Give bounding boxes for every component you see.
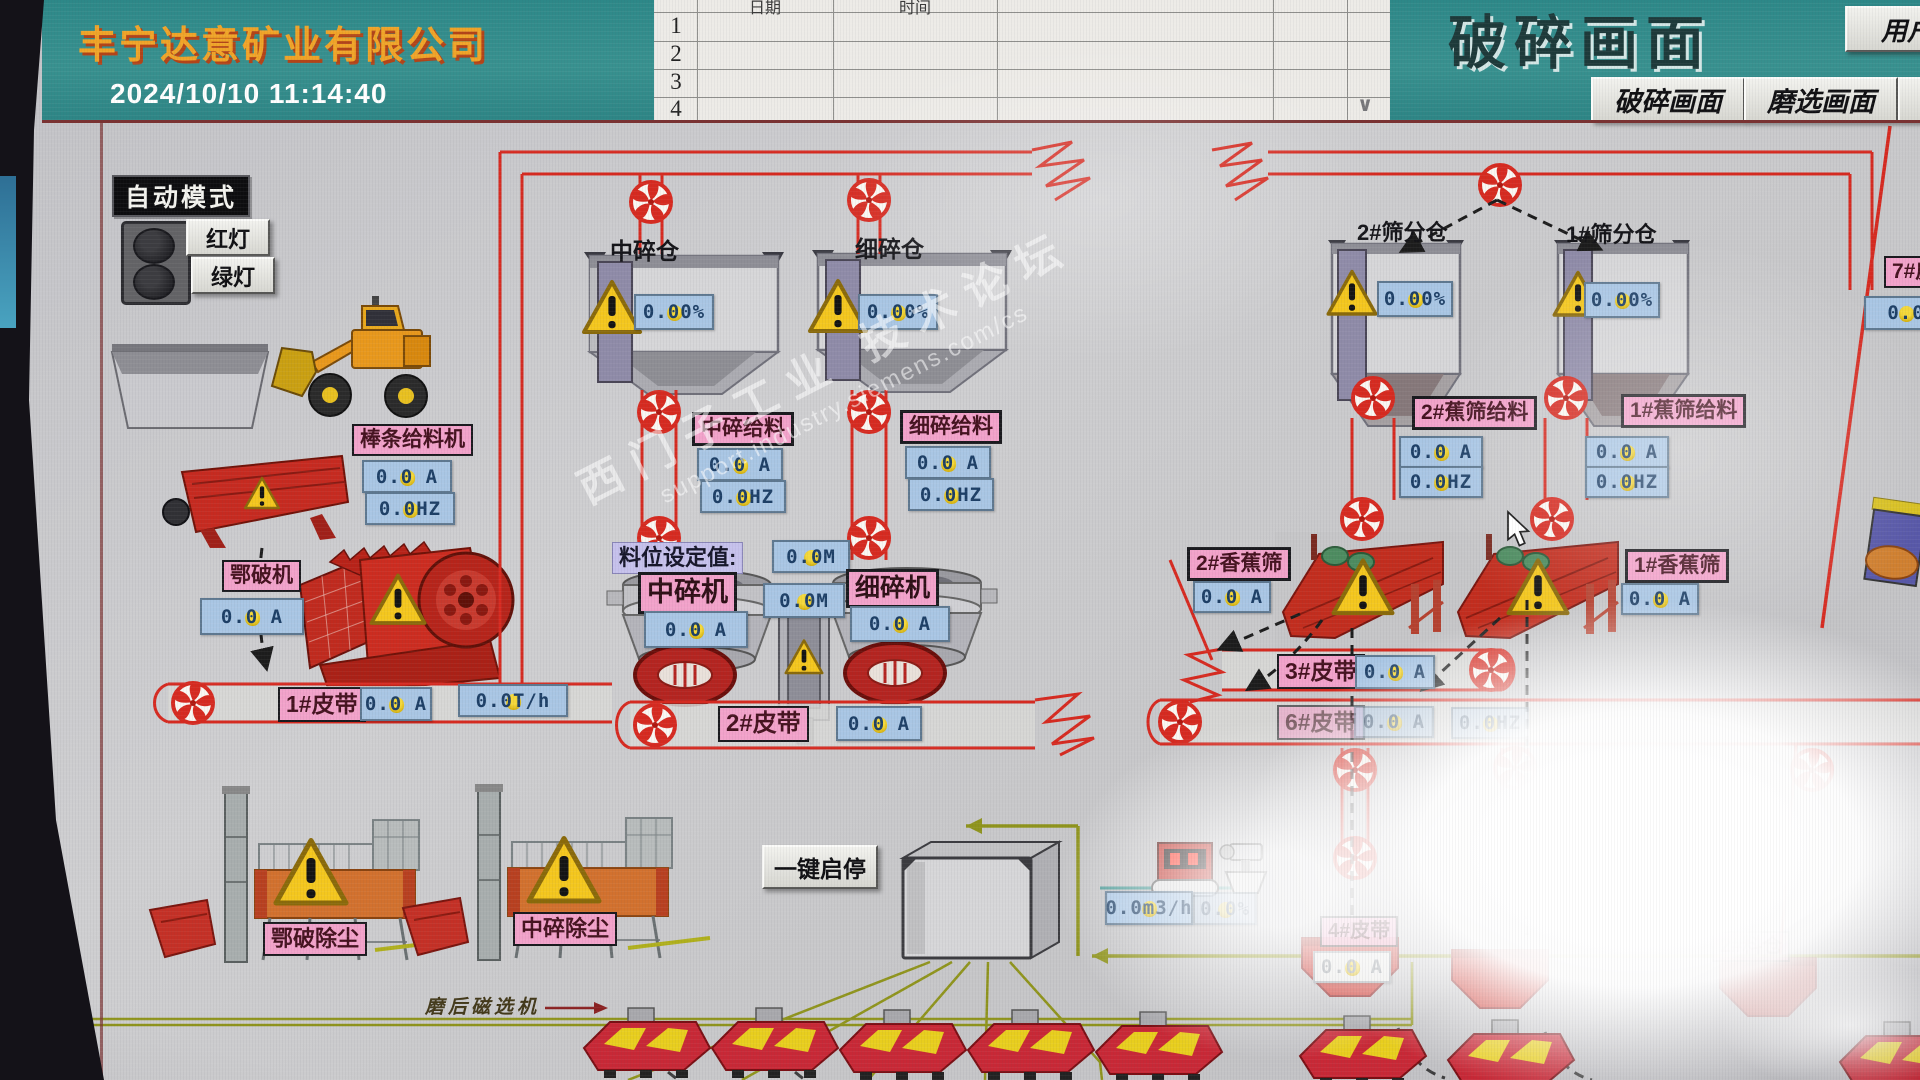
jaw-dust-label: 鄂破除尘 <box>263 922 367 956</box>
bin2-lower-label: 2#料仓 <box>1712 931 1790 962</box>
banana-screen2-current: 0.0 A <box>1193 581 1271 613</box>
belt1-label: 1#皮带 <box>278 687 366 722</box>
auto-mode-indicator: 自动模式 <box>112 175 250 217</box>
banana-feeder1-current: 0.0 A <box>1585 436 1669 468</box>
traffic-light <box>121 221 191 305</box>
banana-screen2-label: 2#香蕉筛 <box>1187 547 1291 581</box>
wheel-loader <box>272 296 430 417</box>
level-setpoint-label: 料位设定值: <box>612 542 743 574</box>
header-datetime: 2024/10/10 11:14:40 <box>110 78 387 110</box>
fine-feeder-freq: 0.0HZ <box>908 478 994 511</box>
mid-bin-level: 0.00% <box>634 294 714 330</box>
belt4-current: 0.0 A <box>1313 951 1391 983</box>
fine-crusher-current: 0.0 A <box>850 606 950 642</box>
level-measured-value: 0.0M <box>763 583 845 618</box>
belt2-current: 0.0 A <box>836 706 922 741</box>
belt3-label: 3#皮带 <box>1277 654 1365 689</box>
green-light-button[interactable]: 绿灯 <box>191 257 275 294</box>
fine-feeder-label: 细碎给料 <box>900 410 1002 444</box>
flow-rate-value: 0.0m3/h <box>1105 891 1193 925</box>
jaw-crusher-current: 0.0 A <box>200 598 304 635</box>
banana-feeder1-label: 1#蕉筛给料 <box>1621 394 1746 428</box>
belt7-current: 0.0 <box>1864 296 1920 330</box>
banana-screen2-machine <box>1275 532 1455 650</box>
belt3-current: 0.0 A <box>1355 655 1435 689</box>
belt6-label: 6#皮带 <box>1277 705 1365 740</box>
alarm-log-table: 日期 时间 1 2 3 4 ∨ <box>654 0 1390 121</box>
screen-bin1-level: 0.00% <box>1584 282 1660 318</box>
mid-feeder-label: 中碎给料 <box>692 412 794 446</box>
fine-bin-level: 0.00% <box>858 294 938 330</box>
tab-grinding-screen[interactable]: 磨选画面 <box>1744 77 1898 122</box>
page-title: 破碎画面 <box>1448 0 1712 80</box>
table-header-time: 时间 <box>899 0 931 18</box>
table-header-date: 日期 <box>749 0 781 18</box>
belt7-label: 7#皮带 <box>1884 256 1920 288</box>
red-light-button[interactable]: 红灯 <box>186 219 270 256</box>
tab-extra[interactable] <box>1898 77 1920 122</box>
table-row-number: 1 <box>670 13 682 39</box>
mid-crusher-label: 中碎机 <box>638 572 737 614</box>
bar-feeder-current: 0.0 A <box>362 460 452 493</box>
banana-feeder2-current: 0.0 A <box>1399 436 1483 468</box>
level-setpoint-value[interactable]: 0.0M <box>772 540 850 573</box>
left-border-line <box>100 123 103 1080</box>
header-divider <box>42 120 1920 123</box>
screen-bin1-label: 1#筛分仓 <box>1566 217 1656 249</box>
bottom-hopper <box>1720 958 1816 1016</box>
valve-icon <box>1220 844 1266 893</box>
tab-crushing-screen[interactable]: 破碎画面 <box>1591 77 1745 122</box>
belt6-current: 0.0 A <box>1354 706 1434 738</box>
banana-feeder2-label: 2#蕉筛给料 <box>1412 396 1537 430</box>
table-row-number: 4 <box>670 96 682 121</box>
banana-screen1-machine <box>1450 532 1630 650</box>
table-scroll-down-icon[interactable]: ∨ <box>1357 92 1373 116</box>
belt1-throughput: 0.0T/h <box>458 684 568 717</box>
flow-pct-value: 0.0% <box>1193 892 1257 925</box>
bar-feeder-freq: 0.0HZ <box>365 492 455 525</box>
belt4-label: 4#皮带 <box>1320 916 1398 947</box>
bottom-hopper <box>1452 950 1548 1008</box>
banana-screen1-current: 0.0 A <box>1621 583 1699 615</box>
user-button[interactable]: 用户 <box>1845 6 1920 52</box>
raw-ore-bin <box>112 344 268 428</box>
jaw-crusher-label: 鄂破机 <box>222 560 301 592</box>
table-row-number: 3 <box>670 69 682 95</box>
hmi-crushing-screen: 丰宁达意矿业有限公司 2024/10/10 11:14:40 日期 时间 1 2… <box>0 0 1920 1080</box>
banana-feeder1-freq: 0.0HZ <box>1585 466 1669 498</box>
screen-bin2-label: 2#筛分仓 <box>1357 215 1447 247</box>
screen-bin2-level: 0.00% <box>1377 281 1453 317</box>
belt1-current: 0.0 A <box>360 687 432 721</box>
banana-feeder2-freq: 0.0HZ <box>1399 466 1483 498</box>
jaw-crusher-machine <box>300 542 513 694</box>
mid-crusher-current: 0.0 A <box>644 611 748 648</box>
belt6-freq: 0.0HZ <box>1451 707 1529 739</box>
fine-feeder-current: 0.0 A <box>905 446 991 479</box>
bar-feeder-machine <box>163 456 348 548</box>
edge-equipment <box>1862 497 1920 586</box>
fine-crusher-label: 细碎机 <box>846 569 939 608</box>
header-left-panel: 丰宁达意矿业有限公司 2024/10/10 11:14:40 <box>42 0 654 121</box>
table-row-number: 2 <box>670 41 682 67</box>
banana-screen1-label: 1#香蕉筛 <box>1625 549 1729 583</box>
mid-bin-label: 中碎仓 <box>610 232 679 266</box>
company-name: 丰宁达意矿业有限公司 <box>78 14 488 69</box>
mid-feeder-current: 0.0 A <box>697 448 783 481</box>
mid-dust-label: 中碎除尘 <box>513 912 617 946</box>
fine-bin-label: 细碎仓 <box>855 230 924 264</box>
one-key-start-stop-button[interactable]: 一键启停 <box>762 845 878 889</box>
magnetic-separator-note: 磨后磁选机 <box>425 992 540 1019</box>
bar-feeder-label: 棒条给料机 <box>352 424 473 456</box>
magnetic-note-arrow <box>545 1002 608 1014</box>
water-tank <box>903 842 1059 958</box>
mimic-graphics <box>0 0 1920 1080</box>
mid-feeder-freq: 0.0HZ <box>700 480 786 513</box>
red-lamp <box>133 228 175 264</box>
green-lamp <box>133 264 175 300</box>
background-monitor-sliver <box>0 176 16 328</box>
belt2-label: 2#皮带 <box>718 706 809 742</box>
